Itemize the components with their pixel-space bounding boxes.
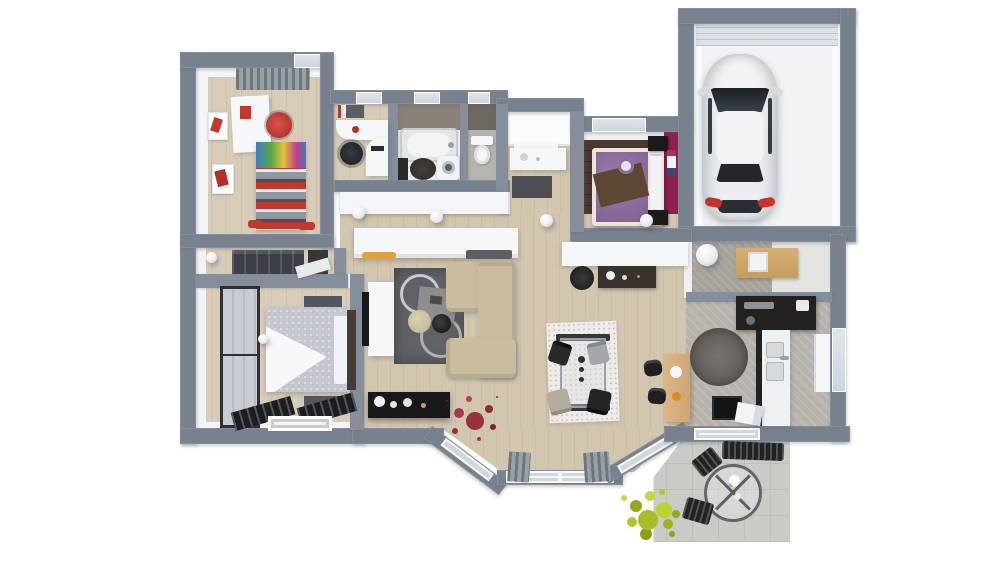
bedroom2-hall-cabinet [562,242,688,266]
hall-console-decor [606,271,615,280]
terrace-table [704,464,762,522]
hall-cabinet-row [340,192,510,214]
terrace-table-flower [729,475,740,486]
living-console-vases [374,396,385,407]
wc-tiled-wall [468,104,496,130]
entry-doormat [512,176,552,198]
bar-stool-2 [647,387,667,405]
kitchen-pot [746,316,755,325]
hall-lamp-2 [430,210,443,223]
bay-curtain-left [507,451,531,482]
tv-sideboard [368,282,394,356]
wall-right-outer [840,8,856,242]
car-roof [716,111,764,163]
bedroom2-round-cushion [618,158,634,174]
kids-chair [266,112,292,138]
red-plant [466,412,484,430]
bedroom2-nightstand-top [648,136,668,151]
kids-bed-print-headboard [256,142,306,168]
wall-dressing-bottom [196,274,348,288]
wall-office-bath [388,104,398,180]
bath-rug [410,158,436,180]
master-pillows [334,314,347,384]
bedroom2-window [592,118,646,132]
hall-lamp-1 [352,206,365,219]
sofa-bottom-row [446,338,516,378]
entry-console [510,148,566,170]
terrace-bench [722,441,785,461]
wall-bathblock-bottom [334,180,510,192]
office-desk-return [366,138,388,176]
kitchen-oven [744,302,774,309]
master-headboard [347,310,356,390]
wall-entry-top [496,98,584,112]
bathroom-tiled-wall [398,104,460,130]
toilet-tank [471,136,493,145]
dressing-lamp [206,252,217,263]
wall-bath-wc [460,104,468,180]
wall-garage-left [678,8,694,238]
bar-orange-bowl [672,392,681,401]
office-monitor [371,146,384,151]
floorplan-render [0,0,1000,563]
pouf-beige [408,310,431,333]
hall-vent-dark [466,250,512,259]
car-windshield [709,88,771,112]
kids-slipper-1 [248,220,262,228]
coffee-table-tray [430,295,443,304]
utility-white-box [748,252,768,272]
tv [362,292,369,346]
bedroom2-picture [667,150,676,176]
bay-window-center-mullion [558,471,562,483]
washing-machine-lid [442,161,455,174]
kitchen-terrace-door [694,428,760,440]
sofa-chaise-top [446,262,480,312]
bath-skylight [414,92,440,104]
car [702,54,778,220]
entry-porch [508,112,570,146]
wall-bedroom2-bottom [570,228,692,242]
kids-curtain [236,68,310,90]
kitchen-towel-box [734,402,763,426]
dining-chair-2 [586,340,610,366]
office-chair [340,142,363,165]
master-bedside-lamp [258,334,268,344]
kids-slipper-2 [298,222,315,230]
breakfast-bar [664,354,690,422]
office-shelf [338,105,364,118]
green-plant [638,510,658,530]
car-side-window-right [768,98,772,154]
bath-faucet [448,142,454,148]
kitchen-sink-2 [766,362,784,381]
wc-skylight [468,92,490,104]
bar-plate [670,366,682,378]
wall-left-outer [180,52,196,444]
side-table-black [432,314,451,333]
toilet-bowl [474,145,490,164]
hall-lamp-3 [540,214,553,227]
kids-desk-red-item [240,106,251,119]
kitchen-faucet [780,356,789,360]
utility-lamp [696,244,718,266]
car-side-window-left [708,98,712,154]
hall-lamp-4 [640,214,653,227]
office-skylight [356,92,382,104]
wall-kids-right [320,52,334,248]
master-wardrobe-divider [223,354,257,356]
kitchen-microwave [796,300,809,311]
wall-garage-top [678,8,856,24]
hall-round-rug-black [570,266,594,290]
bath-vanity [398,158,408,180]
bathtub-basin [407,133,451,157]
kitchen-round-rug [690,328,748,386]
wall-entry-bedroom2 [570,112,584,232]
wall-kids-bottom [180,234,334,248]
office-mug [352,126,359,133]
car-rear-window [715,164,765,182]
dressing-unit-1 [232,250,304,274]
master-mat-top [304,296,342,307]
bay-curtain-right [583,451,611,483]
dining-candles [578,356,585,363]
kitchen-side-window [832,328,846,392]
office-desk [336,120,388,140]
kitchen-window-sill [814,334,830,392]
garage-door [696,24,838,46]
car-trunk-glass [718,200,762,213]
master-floor-window-frame [268,416,332,431]
entry-console-decor [520,153,528,161]
hall-orange-tray [362,252,396,259]
